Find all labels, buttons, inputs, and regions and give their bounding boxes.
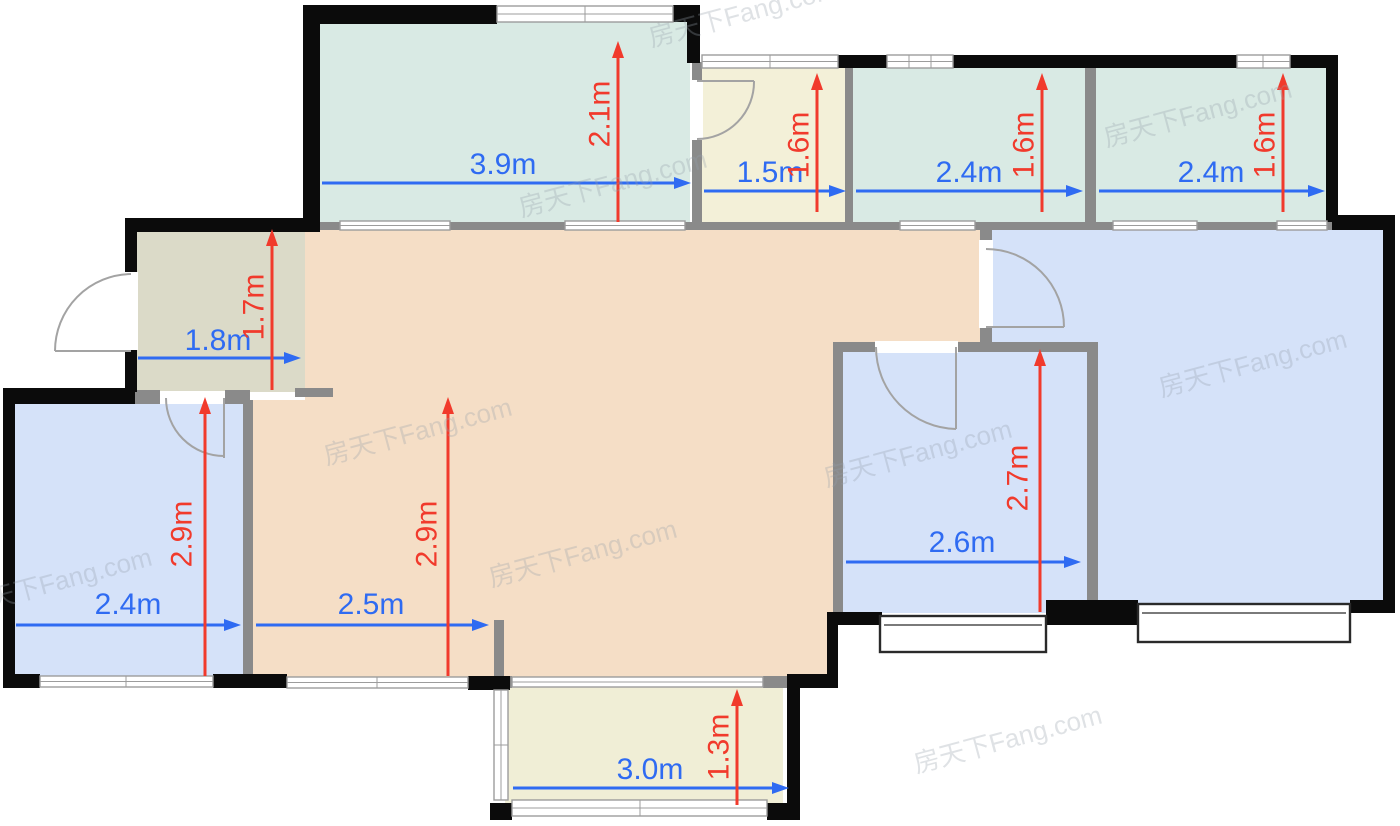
wall-segment	[3, 388, 135, 404]
wall-segment	[125, 218, 320, 232]
window	[494, 690, 508, 800]
dim-label: 3.9m	[470, 148, 537, 181]
wall-segment	[1350, 600, 1395, 613]
wall-segment	[135, 390, 160, 404]
room-entry-hall	[137, 228, 308, 392]
room-top-room-a	[851, 65, 1087, 222]
wall-segment	[1087, 342, 1098, 614]
window	[1277, 221, 1327, 230]
room-middle-bedroom	[843, 350, 1088, 613]
wall-segment	[953, 55, 1237, 68]
dim-label: 1.6m	[1249, 112, 1282, 179]
wall-segment	[958, 342, 1098, 352]
dim-label: 2.7m	[1002, 445, 1035, 512]
wall-segment	[468, 676, 510, 690]
balcony-opening	[512, 677, 763, 687]
dim-label: 1.6m	[1008, 112, 1041, 179]
wall-segment	[763, 676, 790, 688]
wall-segment	[303, 5, 497, 24]
wall-segment	[767, 803, 800, 820]
wall-segment	[827, 612, 838, 684]
dim-label: 2.4m	[95, 588, 162, 621]
wall-segment	[833, 612, 882, 625]
bay-window	[880, 616, 1046, 652]
dim-label: 1.6m	[783, 112, 816, 179]
wall-segment	[692, 62, 702, 80]
wall-segment	[833, 342, 875, 352]
window	[900, 221, 975, 230]
window	[1113, 221, 1197, 230]
dim-label: 3.0m	[617, 753, 684, 786]
wall-segment	[1046, 600, 1138, 625]
wall-segment	[787, 674, 800, 820]
window	[512, 800, 767, 816]
wall-segment	[3, 388, 15, 688]
floor-plan: 3.9m 1.5m 2.4m 2.4m 1.8m 2.4m	[0, 0, 1400, 826]
dim-label: 2.5m	[338, 588, 405, 621]
dim-label: 1.3m	[703, 714, 736, 781]
wall-segment	[213, 674, 287, 688]
bay-window	[1138, 604, 1350, 642]
room-small-room	[700, 62, 845, 222]
dim-label: 2.4m	[1178, 156, 1245, 189]
wall-segment	[225, 390, 250, 404]
wall-segment	[1383, 215, 1395, 613]
wall-segment	[295, 388, 333, 397]
wall-segment	[243, 400, 253, 688]
wall-segment	[490, 803, 512, 820]
dim-label: 2.4m	[936, 156, 1003, 189]
window	[887, 55, 953, 68]
dim-label: 2.9m	[411, 501, 444, 568]
wall-segment	[125, 218, 137, 274]
wall-segment	[1085, 65, 1096, 222]
dim-label: 1.7m	[238, 274, 271, 341]
window	[497, 6, 673, 22]
window	[287, 677, 468, 688]
floor-plan-canvas: 3.9m 1.5m 2.4m 2.4m 1.8m 2.4m	[0, 0, 1400, 826]
wall-segment	[838, 55, 887, 68]
wall-segment	[845, 65, 853, 222]
wall-segment	[303, 5, 320, 222]
window	[340, 221, 450, 230]
wall-segment	[125, 350, 137, 392]
window	[702, 55, 838, 68]
dim-label: 2.1m	[584, 81, 617, 148]
window	[565, 221, 685, 230]
dim-label: 2.9m	[166, 501, 199, 568]
wall-segment	[1326, 55, 1338, 222]
dim-label: 2.6m	[929, 526, 996, 559]
window	[1237, 55, 1290, 68]
window	[40, 676, 213, 687]
wall-segment	[980, 222, 992, 240]
room-left-bedroom	[14, 400, 244, 678]
